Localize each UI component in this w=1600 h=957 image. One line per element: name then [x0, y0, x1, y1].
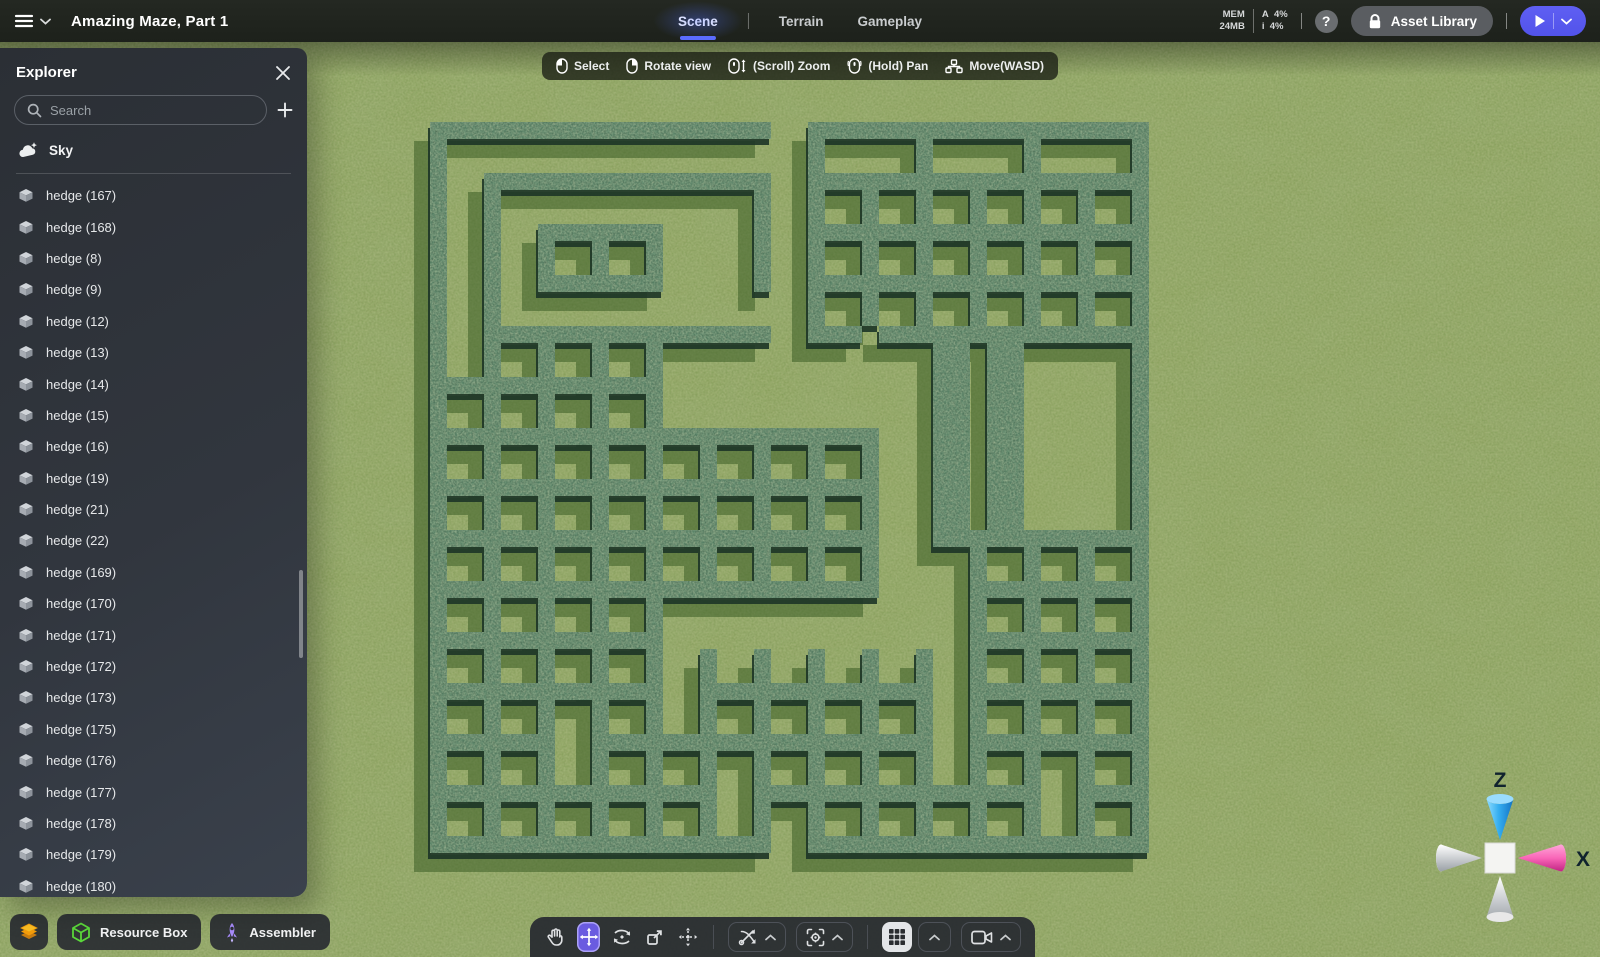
tab-gameplay[interactable]: Gameplay: [854, 0, 927, 42]
hint-move: Move(WASD): [945, 59, 1044, 74]
bottom-dock: Resource Box Assembler: [10, 914, 330, 950]
explorer-item[interactable]: hedge (15): [18, 400, 307, 431]
z-axis-cone[interactable]: [1487, 794, 1514, 804]
explorer-item-sky[interactable]: Sky: [0, 125, 307, 159]
cube-icon: [18, 377, 34, 392]
tab-terrain[interactable]: Terrain: [775, 0, 828, 42]
asset-library-button[interactable]: Asset Library: [1351, 6, 1493, 36]
cube-icon: [18, 408, 34, 423]
chevron-up-icon: [1000, 934, 1011, 941]
explorer-panel: Explorer Sky hedge (167)hedge (168)he: [0, 48, 307, 897]
gizmo-space-button[interactable]: [676, 922, 699, 952]
cube-icon: [18, 565, 34, 580]
layers-button[interactable]: [10, 914, 48, 950]
explorer-item[interactable]: hedge (179): [18, 839, 307, 870]
explorer-item[interactable]: hedge (171): [18, 619, 307, 650]
page-title: Amazing Maze, Part 1: [71, 13, 228, 30]
move-tool-button[interactable]: [577, 922, 600, 952]
cube-icon: [18, 502, 34, 517]
grid-options-button[interactable]: [918, 922, 951, 952]
explorer-item[interactable]: hedge (177): [18, 776, 307, 807]
z-axis-label: Z: [1494, 769, 1507, 792]
grid-toggle-button[interactable]: [882, 922, 912, 952]
chevron-up-icon: [929, 934, 940, 941]
mem-value: 24MB: [1219, 21, 1244, 33]
chevron-down-icon: [40, 18, 51, 25]
tab-divider: [748, 13, 749, 29]
cube-icon: [18, 345, 34, 360]
chevron-down-icon[interactable]: [1561, 18, 1572, 25]
explorer-title: Explorer: [16, 64, 77, 81]
hint-zoom: (Scroll) Zoom: [728, 58, 830, 74]
explorer-list: hedge (167)hedge (168)hedge (8)hedge (9)…: [0, 174, 307, 897]
tab-scene[interactable]: Scene: [674, 0, 722, 42]
gizmo-axes-icon: [678, 927, 698, 947]
explorer-item[interactable]: hedge (12): [18, 306, 307, 337]
cube-icon: [18, 690, 34, 705]
hint-pan: (Hold) Pan: [847, 58, 928, 74]
assembler-button[interactable]: Assembler: [210, 914, 329, 950]
explorer-item[interactable]: hedge (169): [18, 557, 307, 588]
play-icon: [1534, 14, 1546, 28]
explorer-item[interactable]: hedge (173): [18, 682, 307, 713]
top-bar: Amazing Maze, Part 1 Scene Terrain Gamep…: [0, 0, 1600, 42]
cube-icon: [18, 251, 34, 266]
explorer-item[interactable]: hedge (172): [18, 651, 307, 682]
camera-settings-button[interactable]: [961, 922, 1021, 952]
scale-icon: [645, 927, 665, 947]
search-icon: [27, 103, 42, 118]
cube-icon: [18, 816, 34, 831]
snap-icon: [738, 928, 758, 946]
explorer-item[interactable]: hedge (170): [18, 588, 307, 619]
rotate-icon: [611, 927, 633, 947]
gizmo-center-cube[interactable]: [1485, 843, 1515, 873]
chevron-up-icon: [832, 934, 843, 941]
x-axis-label: X: [1576, 848, 1590, 871]
cube-icon: [18, 471, 34, 486]
mouse-right-icon: [626, 58, 638, 74]
cube-icon: [18, 439, 34, 454]
explorer-item[interactable]: hedge (180): [18, 871, 307, 897]
sky-icon: [18, 141, 39, 159]
search-input[interactable]: [50, 103, 200, 118]
scale-tool-button[interactable]: [643, 922, 666, 952]
cube-icon: [18, 220, 34, 235]
snap-settings-button[interactable]: [728, 922, 786, 952]
mem-label: MEM: [1219, 9, 1244, 21]
move-icon: [579, 927, 599, 947]
cube-icon: [18, 596, 34, 611]
explorer-item[interactable]: hedge (178): [18, 808, 307, 839]
explorer-item[interactable]: hedge (14): [18, 368, 307, 399]
cube-icon: [18, 659, 34, 674]
resource-box-icon: [71, 922, 91, 943]
axis-gizmo[interactable]: Z X: [1435, 755, 1600, 930]
hamburger-icon: [14, 13, 34, 29]
assembler-rocket-icon: [224, 922, 240, 943]
mouse-hold-icon: [847, 58, 862, 74]
close-icon[interactable]: [275, 65, 291, 81]
scrollbar-thumb[interactable]: [299, 570, 303, 658]
explorer-item[interactable]: hedge (9): [18, 274, 307, 305]
performance-stats: MEM 24MB A 4% i 4%: [1219, 9, 1287, 33]
viewport-hint-bar: Select Rotate view (Scroll) Zoom (Hold) …: [542, 52, 1058, 80]
focus-settings-button[interactable]: [796, 922, 853, 952]
explorer-item[interactable]: hedge (8): [18, 243, 307, 274]
explorer-item[interactable]: hedge (176): [18, 745, 307, 776]
explorer-item[interactable]: hedge (167): [18, 180, 307, 211]
resource-box-button[interactable]: Resource Box: [57, 914, 201, 950]
mouse-left-icon: [556, 58, 568, 74]
cube-icon: [18, 722, 34, 737]
cube-icon: [18, 188, 34, 203]
cube-icon: [18, 628, 34, 643]
hint-select: Select: [556, 58, 609, 74]
cube-icon: [18, 753, 34, 768]
move-keys-icon: [945, 59, 963, 74]
search-box[interactable]: [14, 95, 267, 125]
cube-icon: [18, 879, 34, 894]
cube-icon: [18, 533, 34, 548]
explorer-item[interactable]: hedge (16): [18, 431, 307, 462]
rotate-tool-button[interactable]: [610, 922, 633, 952]
chevron-up-icon: [765, 934, 776, 941]
cube-icon: [18, 785, 34, 800]
cube-icon: [18, 314, 34, 329]
explorer-item[interactable]: hedge (22): [18, 525, 307, 556]
play-button[interactable]: [1520, 6, 1586, 36]
explorer-item[interactable]: hedge (21): [18, 494, 307, 525]
layers-icon: [18, 922, 40, 942]
explorer-item[interactable]: hedge (168): [18, 211, 307, 242]
explorer-item[interactable]: hedge (175): [18, 714, 307, 745]
hint-rotate-view: Rotate view: [626, 58, 711, 74]
bottom-toolbar: [530, 917, 1035, 957]
camera-icon: [971, 930, 993, 945]
cube-icon: [18, 847, 34, 862]
explorer-item[interactable]: hedge (13): [18, 337, 307, 368]
cube-icon: [18, 282, 34, 297]
add-icon[interactable]: [277, 102, 293, 118]
pan-tool-button[interactable]: [544, 922, 567, 952]
focus-gear-icon: [806, 928, 825, 947]
help-button[interactable]: ?: [1315, 10, 1338, 33]
explorer-item[interactable]: hedge (19): [18, 463, 307, 494]
mouse-scroll-icon: [728, 58, 747, 74]
grid-icon: [888, 928, 906, 946]
lock-icon: [1367, 13, 1383, 30]
view-tabs: Scene Terrain Gameplay: [674, 0, 926, 42]
main-menu-button[interactable]: [14, 13, 51, 29]
hand-icon: [546, 927, 566, 947]
